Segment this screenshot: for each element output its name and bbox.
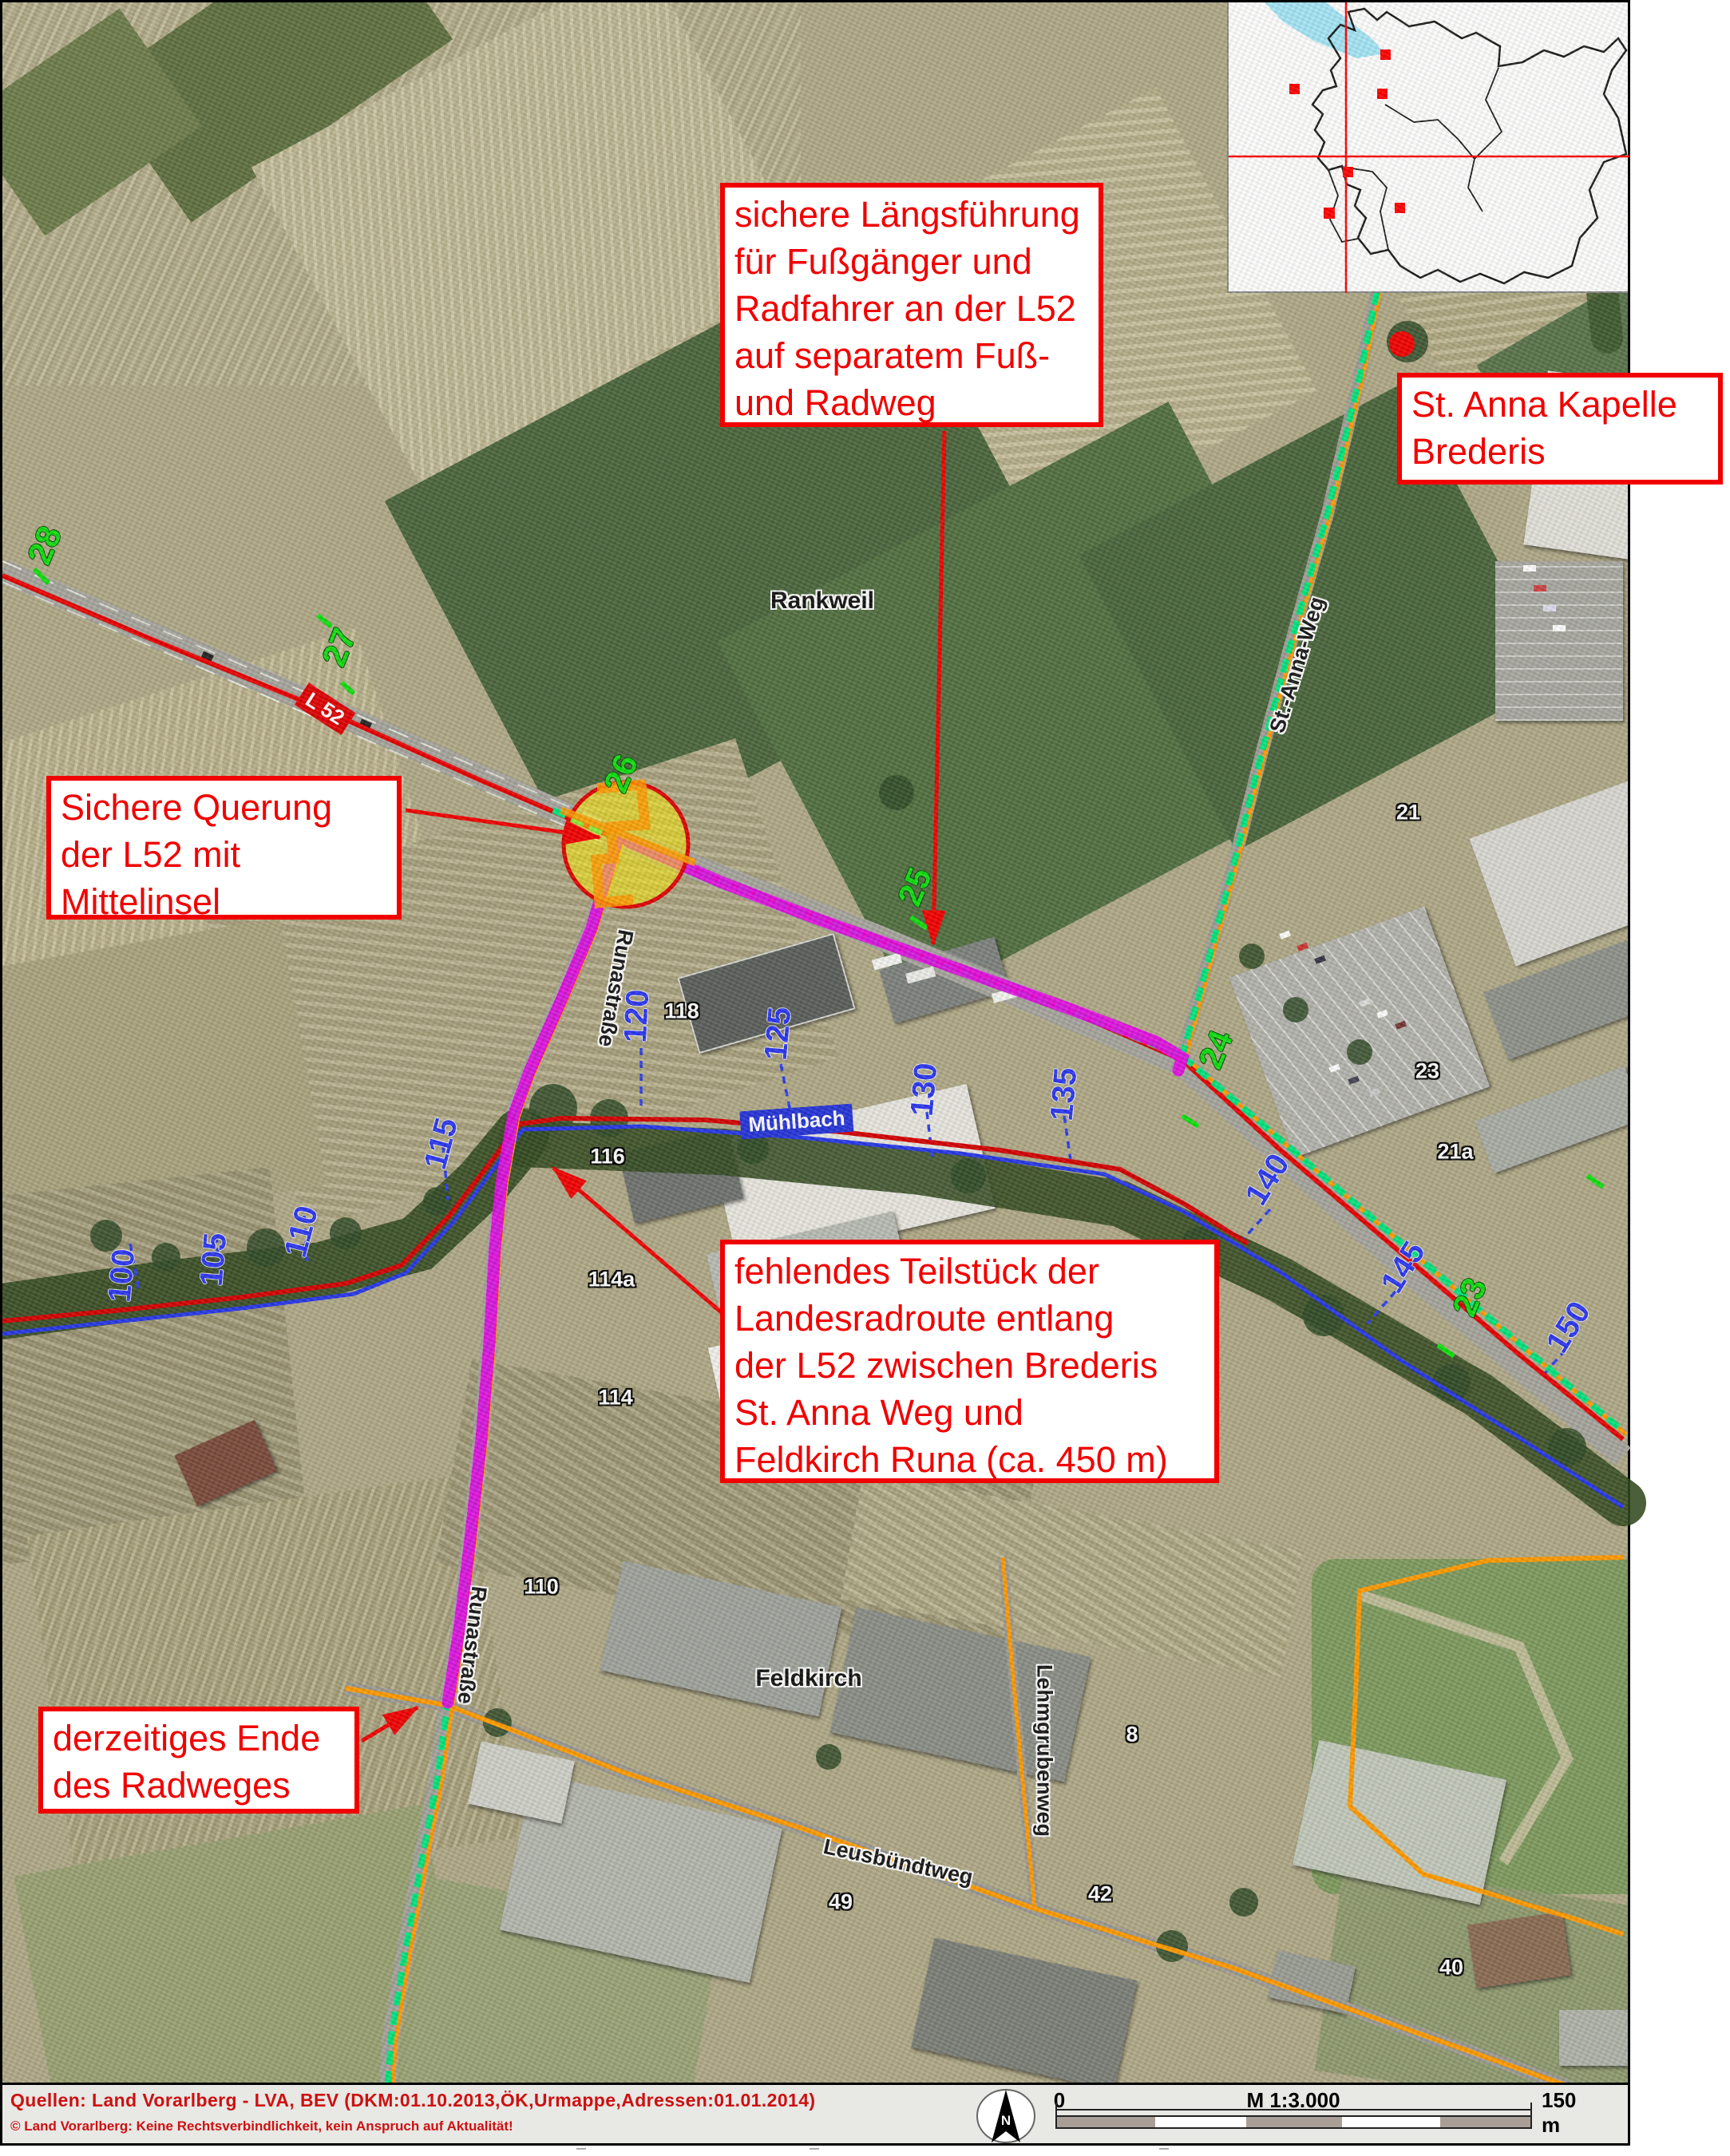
road-leusbuendtweg — [346, 1688, 1567, 2086]
scalebar — [1055, 2115, 1532, 2129]
annotation-line: St. Anna Kapelle — [1411, 381, 1708, 428]
annotation-line: auf separatem Fuß- — [734, 332, 1089, 379]
scalebar-distance: 150 m — [1542, 2088, 1599, 2138]
annotation-line: der L52 zwischen Brederis — [734, 1342, 1205, 1389]
annotation-line: Radfahrer an der L52 — [734, 285, 1089, 332]
annotation-line: Mittelinsel — [61, 878, 387, 925]
leader-ende — [362, 1707, 418, 1741]
annotation-line: Brederis — [1411, 428, 1708, 475]
annotation-line: St. Anna Weg und — [734, 1389, 1205, 1436]
inset-crosshair — [1229, 2, 1629, 293]
source-line: Quellen: Land Vorarlberg - LVA, BEV (DKM… — [10, 2090, 815, 2111]
annotation-line: sichere Längsführung — [734, 191, 1089, 238]
annotation-box-ende: derzeitiges Endedes Radweges — [38, 1707, 359, 1814]
annotation-line: für Fußgänger und — [734, 238, 1089, 285]
annotation-line: der L52 mit — [61, 831, 387, 878]
planning-map-page: RankweilFeldkirchRunastraßeRunastraßeSt.… — [0, 0, 1730, 2156]
crossing-highlight-circle — [564, 782, 688, 907]
leader-fehlend — [553, 1168, 725, 1315]
annotation-line: fehlendes Teilstück der — [734, 1248, 1205, 1295]
annotation-box-querung: Sichere Querungder L52 mitMittelinsel — [46, 776, 402, 920]
road-runastrasse — [388, 841, 617, 2086]
park-path — [1360, 1595, 1567, 1862]
annotation-box-kapelle: St. Anna KapelleBrederis — [1397, 373, 1723, 485]
leader-laengsfuehrung — [933, 431, 944, 944]
annotation-leaders — [362, 431, 944, 1741]
annotation-line: Sichere Querung — [61, 784, 387, 831]
annotation-line: derzeitiges Ende — [53, 1715, 345, 1762]
chapel-marker-dot — [1389, 331, 1415, 357]
scalebar-rule — [1055, 2109, 1532, 2111]
copyright-line: © Land Vorarlberg: Keine Rechtsverbindli… — [10, 2118, 513, 2134]
annotation-line: und Radweg — [734, 379, 1089, 426]
annotation-line: des Radweges — [53, 1762, 345, 1809]
annotation-box-fehlend: fehlendes Teilstück derLandesradroute en… — [720, 1240, 1219, 1483]
annotation-line: Landesradroute entlang — [734, 1295, 1205, 1342]
annotation-box-laengsfuehrung: sichere Längsführungfür Fußgänger undRad… — [720, 183, 1103, 427]
annotation-line: Feldkirch Runa (ca. 450 m) — [734, 1436, 1205, 1483]
north-arrow: N — [973, 2087, 1039, 2144]
inset-location-markers — [1289, 49, 1405, 219]
inset-district-borders — [1328, 68, 1502, 250]
overview-inset-map — [1227, 2, 1628, 293]
parked-cars — [201, 565, 1566, 1097]
footer-bar: Quellen: Land Vorarlberg - LVA, BEV (DKM… — [2, 2083, 1628, 2143]
svg-text:N: N — [1001, 2113, 1011, 2128]
